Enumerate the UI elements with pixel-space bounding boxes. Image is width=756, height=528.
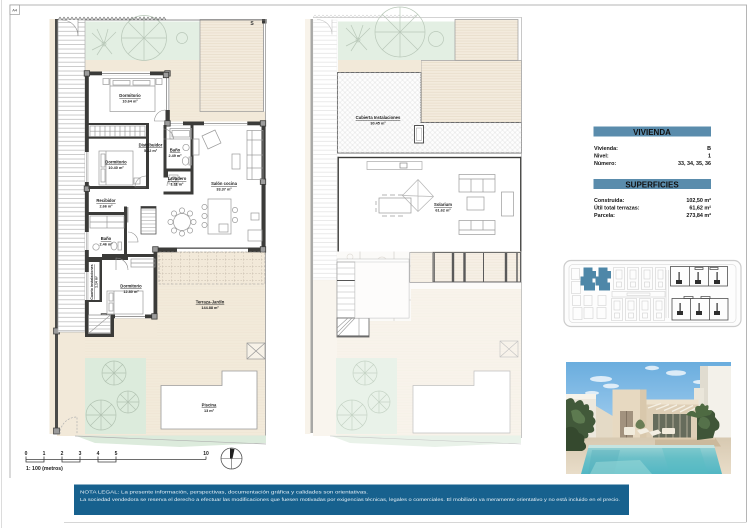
svg-text:Útil total terrazas:: Útil total terrazas:	[594, 205, 640, 212]
svg-text:Nivel:: Nivel:	[594, 154, 609, 160]
svg-text:1.11 m²: 1.11 m²	[171, 183, 185, 187]
svg-text:3: 3	[79, 451, 82, 457]
svg-text:NOTA LEGAL: La presente inform: NOTA LEGAL: La presente información, per…	[80, 490, 368, 495]
svg-text:102,50 m²: 102,50 m²	[686, 198, 711, 204]
svg-text:Número:: Número:	[594, 161, 616, 167]
svg-text:Dormitorio: Dormitorio	[120, 284, 142, 289]
svg-text:Piscina: Piscina	[202, 403, 217, 408]
svg-text:Dormitorio: Dormitorio	[119, 93, 141, 98]
svg-text:61,62 m²: 61,62 m²	[689, 206, 711, 212]
svg-text:33.37 m²: 33.37 m²	[216, 188, 232, 192]
svg-text:Construida:: Construida:	[594, 198, 624, 204]
svg-text:5: 5	[115, 451, 118, 457]
svg-text:Distribuidor: Distribuidor	[139, 143, 163, 148]
svg-text:1: 1	[43, 451, 46, 457]
svg-text:5.22 m²: 5.22 m²	[144, 149, 158, 153]
svg-text:12.80 m²: 12.80 m²	[123, 290, 139, 294]
svg-text:SUPERFICIES: SUPERFICIES	[625, 180, 679, 189]
svg-text:273,84 m²: 273,84 m²	[686, 213, 711, 219]
svg-text:Solarium: Solarium	[434, 202, 452, 207]
svg-text:Vivienda:: Vivienda:	[594, 146, 618, 152]
svg-text:30.45 m²: 30.45 m²	[370, 122, 386, 126]
svg-text:A4: A4	[12, 8, 18, 13]
svg-text:Recibidor: Recibidor	[96, 198, 116, 203]
svg-text:Dormitorio: Dormitorio	[105, 160, 127, 165]
svg-text:Salón cocina: Salón cocina	[211, 181, 238, 186]
svg-text:1: 100 (metros): 1: 100 (metros)	[26, 466, 63, 472]
svg-text:Cubierta Instalaciones: Cubierta Instalaciones	[356, 115, 401, 120]
svg-text:4: 4	[97, 451, 100, 457]
svg-text:10.64 m²: 10.64 m²	[122, 100, 138, 104]
svg-text:Baño: Baño	[170, 148, 181, 153]
svg-text:2.66 m²: 2.66 m²	[99, 205, 113, 209]
svg-text:33, 34, 35, 36: 33, 34, 35, 36	[678, 161, 711, 167]
svg-text:61.62 m²: 61.62 m²	[435, 209, 451, 213]
svg-text:13 m²: 13 m²	[204, 409, 215, 413]
svg-text:0: 0	[25, 451, 28, 457]
svg-text:10.40 m²: 10.40 m²	[108, 166, 124, 170]
svg-text:Parcela:: Parcela:	[594, 213, 615, 219]
svg-text:Baño: Baño	[101, 236, 112, 241]
svg-text:2: 2	[61, 451, 64, 457]
svg-text:1.14 m²: 1.14 m²	[95, 275, 99, 288]
svg-text:VIVIENDA: VIVIENDA	[633, 128, 671, 137]
svg-text:B: B	[707, 146, 711, 152]
svg-text:1: 1	[708, 154, 711, 160]
svg-text:2.46 m²: 2.46 m²	[99, 243, 113, 247]
svg-text:144.88 m²: 144.88 m²	[201, 306, 219, 310]
svg-text:Cuarto instalaciones: Cuarto instalaciones	[90, 264, 94, 299]
svg-text:La sociedad vendedora se reser: La sociedad vendedora se reserva el dere…	[80, 497, 620, 502]
svg-text:Terraza-Jardín: Terraza-Jardín	[196, 300, 225, 305]
svg-text:10: 10	[203, 451, 209, 457]
svg-text:2.49 m²: 2.49 m²	[168, 154, 182, 158]
svg-text:Lavadero: Lavadero	[168, 176, 187, 181]
